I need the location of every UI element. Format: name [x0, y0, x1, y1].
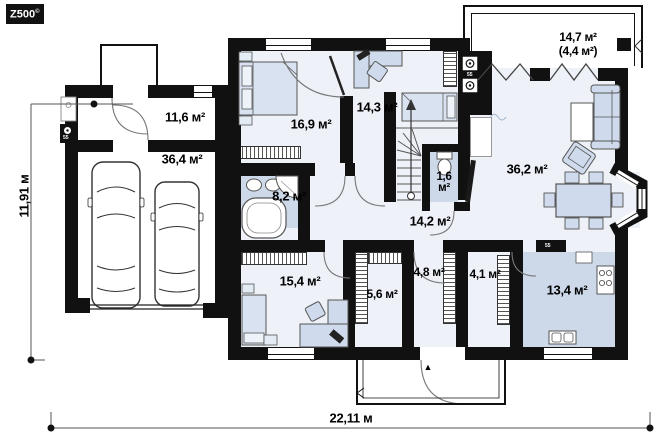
plant-icon: [490, 114, 506, 120]
desk-icon: [354, 49, 402, 88]
dimension-width: 22,11 м: [330, 411, 373, 426]
kitchen-sink-icon: [549, 252, 592, 344]
folding-door: [478, 64, 598, 80]
bed-icon: [242, 284, 277, 345]
flue-label: 55: [467, 73, 473, 78]
room-label-terrace: 14,7 м²: [559, 30, 596, 44]
room-label-entry-hall: 4,1 м²: [469, 267, 500, 281]
room-label-bedroom2: 14,3 м²: [357, 100, 398, 115]
coffee-table-icon: [571, 103, 593, 141]
room-label-wardrobe: 5,6 м²: [366, 287, 397, 301]
bathtub-icon: [242, 198, 286, 238]
sofa-icon: [591, 85, 620, 149]
room-label-living: 36,2 м²: [507, 162, 548, 177]
room-label-bedroom3: 15,4 м²: [280, 274, 321, 289]
tv-icon: [465, 160, 476, 202]
room-label-mudroom: 11,6 м²: [165, 110, 205, 125]
car-icon: [151, 182, 203, 306]
brand-logo-text: Z500: [10, 9, 35, 21]
dimension-height: 11,91 м: [17, 175, 32, 218]
room-label-bedroom1: 16,9 м²: [291, 117, 332, 132]
room-label-pantry: 4,8 м²: [413, 265, 444, 279]
brand-logo-copyright: ©: [35, 9, 39, 15]
room-label-bathroom: 8,2 м²: [272, 189, 306, 204]
dining-set-icon: [544, 172, 623, 229]
flue-label: 55: [63, 136, 69, 141]
desk-icon: [300, 300, 348, 347]
room-label-garage: 36,4 м²: [162, 152, 203, 167]
car-icon: [88, 162, 144, 308]
stove-icon: [597, 266, 614, 294]
room-label-hallway: 14,2 м²: [410, 214, 451, 229]
flue-label: 55: [545, 244, 551, 249]
entrance-arrow: ▲: [424, 362, 433, 372]
sink-icon: [61, 97, 76, 121]
room-label-wc: 1,6 м²: [431, 172, 457, 194]
brand-logo: Z500©: [6, 4, 44, 24]
room-label-kitchen: 13,4 м²: [547, 283, 588, 298]
floor-plan: 11,6 м² 36,4 м² 16,9 м² 14,3 м² 14,7 м² …: [0, 0, 655, 447]
room-label-terrace-note: (4,4 м²): [559, 44, 597, 58]
bed-icon: [239, 52, 297, 125]
plan-linework: [0, 0, 655, 447]
